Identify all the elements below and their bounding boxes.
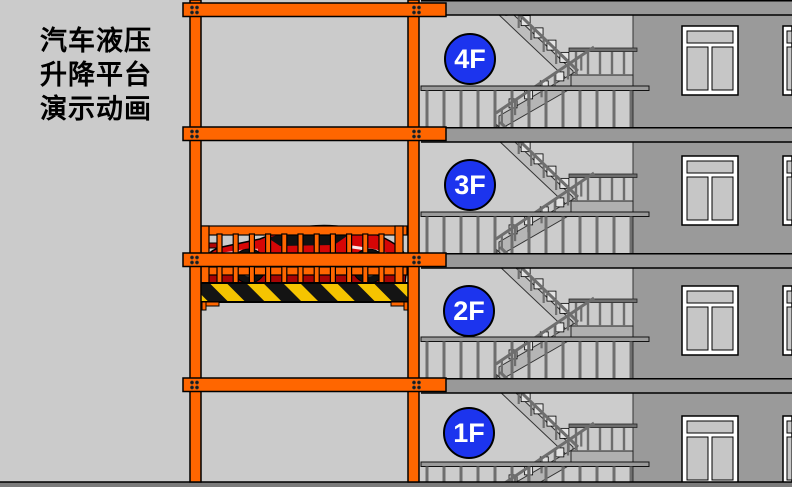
window-partial bbox=[783, 416, 792, 485]
hazard-stripe-platform bbox=[199, 283, 411, 302]
stair-landing bbox=[571, 451, 633, 462]
floor-label-2f: 2F bbox=[453, 296, 485, 327]
animation-stage: 4F 3F 2F 1F 汽车液压 升降平台 演示动画 bbox=[0, 0, 792, 487]
window bbox=[682, 286, 738, 355]
window-partial bbox=[783, 286, 792, 355]
window bbox=[682, 26, 738, 95]
window bbox=[682, 416, 738, 485]
title-line-3: 演示动画 bbox=[30, 92, 162, 126]
title-line-2: 升降平台 bbox=[30, 58, 162, 92]
stair-landing bbox=[571, 75, 633, 86]
window-partial bbox=[783, 26, 792, 95]
frame-beam bbox=[183, 253, 446, 267]
frame-beam bbox=[183, 378, 446, 392]
floor-slab bbox=[421, 127, 792, 142]
floor-label-4f: 4F bbox=[454, 44, 486, 75]
floor-label-1f: 1F bbox=[453, 418, 485, 449]
frame-beam bbox=[183, 127, 446, 141]
ground bbox=[0, 482, 792, 487]
floor-slab bbox=[421, 378, 792, 393]
window bbox=[682, 156, 738, 225]
stair-landing bbox=[571, 201, 633, 212]
page-title: 汽车液压 升降平台 演示动画 bbox=[30, 24, 162, 126]
frame-beam bbox=[183, 3, 446, 17]
floor-badge-2f: 2F bbox=[443, 285, 495, 337]
floor-badge-3f: 3F bbox=[444, 159, 496, 211]
frame-column-right bbox=[408, 0, 419, 482]
frame-column-left bbox=[190, 0, 201, 482]
floor-label-3f: 3F bbox=[454, 170, 486, 201]
floor-slab bbox=[421, 253, 792, 268]
platform-brackets bbox=[202, 302, 408, 310]
floor-slab bbox=[421, 0, 792, 15]
floor-badge-1f: 1F bbox=[443, 407, 495, 459]
title-line-1: 汽车液压 bbox=[30, 24, 162, 58]
window-partial bbox=[783, 156, 792, 225]
stair-landing bbox=[571, 326, 633, 337]
floor-badge-4f: 4F bbox=[444, 33, 496, 85]
lift-platform bbox=[199, 283, 411, 310]
